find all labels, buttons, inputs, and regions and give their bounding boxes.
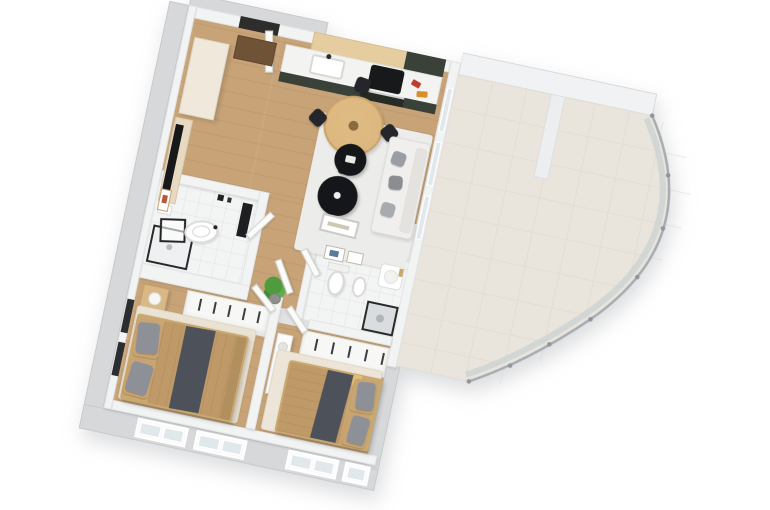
bedroom2-pillow-gray	[355, 381, 376, 411]
bath1-washbasin-stand	[159, 218, 186, 243]
bath1-shelf-items	[217, 194, 224, 201]
floorplan-render	[0, 0, 770, 510]
window-pane	[197, 435, 220, 451]
window-pane	[139, 422, 162, 438]
sofa-pillow	[388, 175, 403, 190]
window-pane	[220, 439, 243, 455]
apartment-plan	[11, 0, 770, 510]
window-pane	[346, 466, 366, 481]
window-pane	[162, 427, 185, 443]
bedroom1-pillow-gray	[135, 322, 160, 355]
kitchen-food-item-orange	[416, 91, 427, 98]
window-pane	[289, 454, 312, 470]
window-pane	[312, 459, 335, 475]
